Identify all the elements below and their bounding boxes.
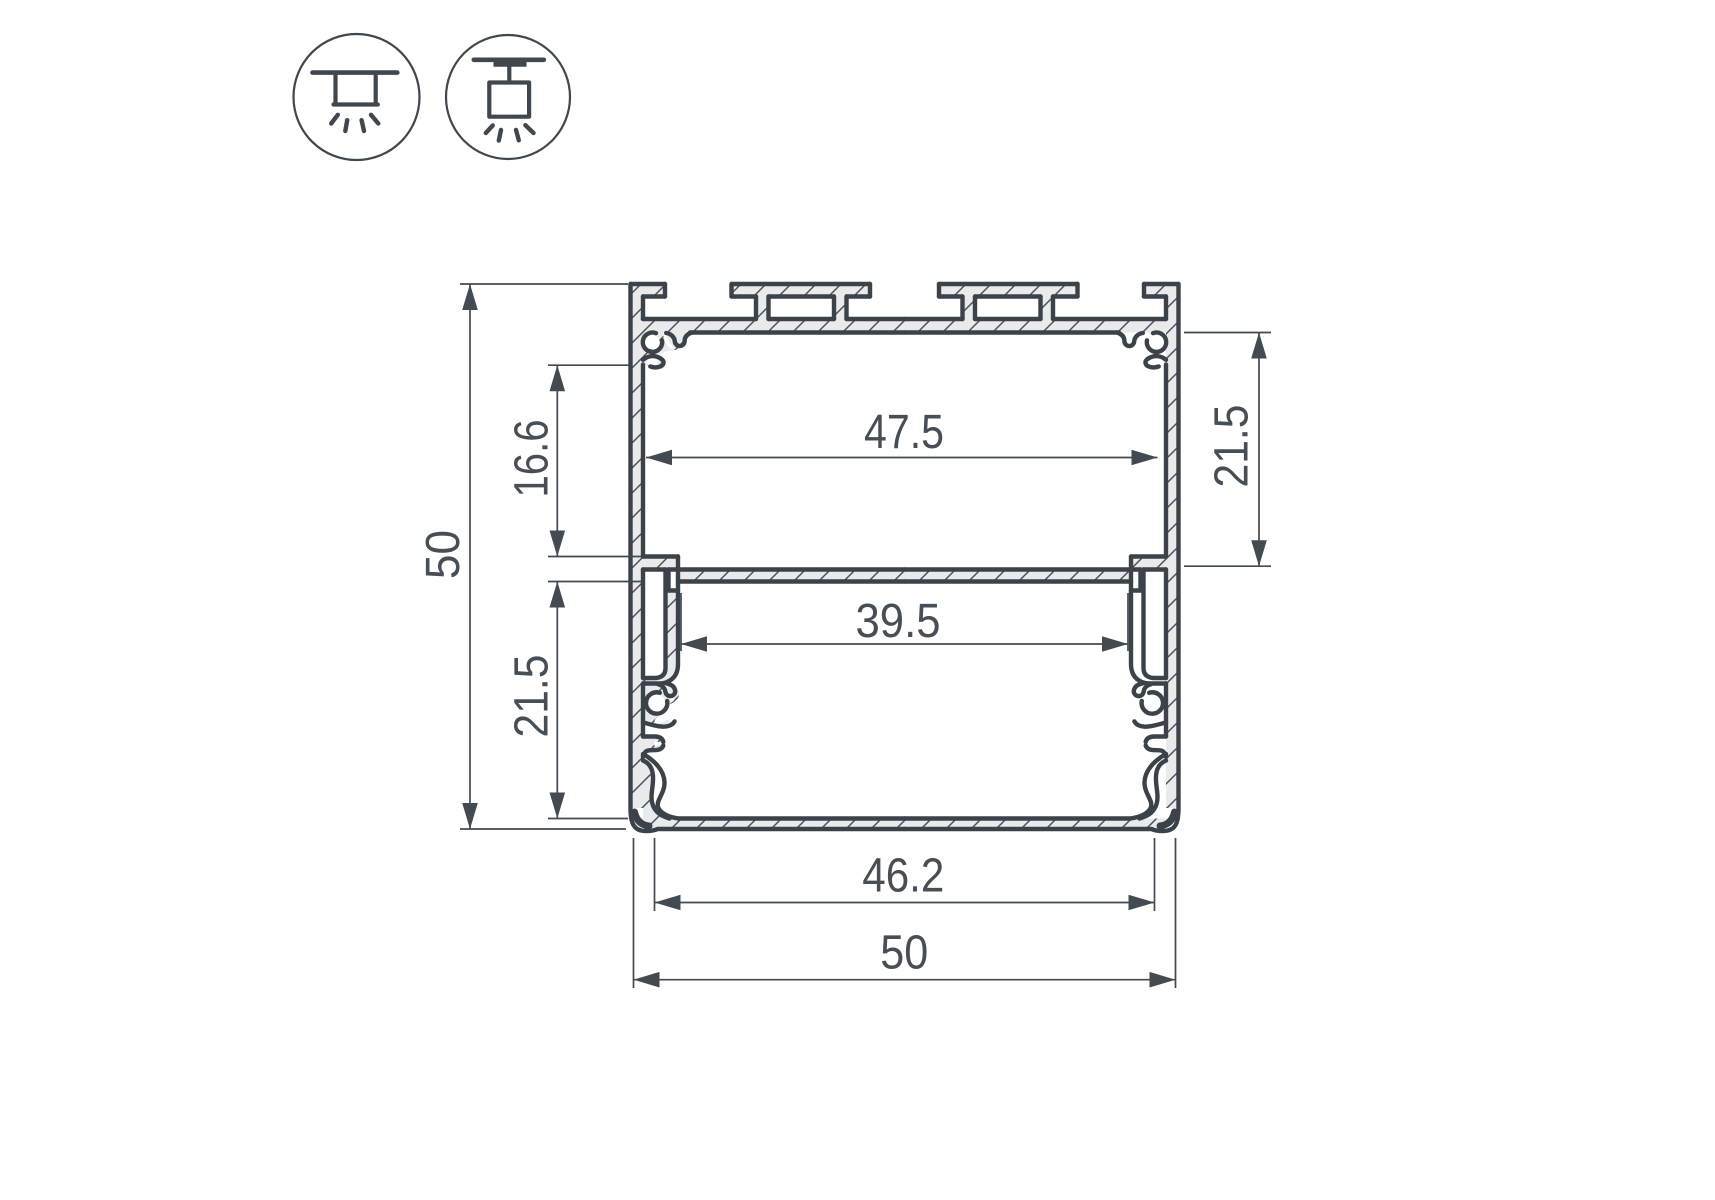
svg-text:46.2: 46.2 [862, 849, 944, 902]
svg-text:39.5: 39.5 [856, 595, 941, 648]
svg-text:21.5: 21.5 [1206, 405, 1259, 488]
svg-text:50: 50 [417, 530, 470, 579]
svg-text:50: 50 [880, 927, 928, 980]
svg-text:21.5: 21.5 [506, 655, 559, 738]
svg-text:16.6: 16.6 [506, 420, 559, 498]
svg-text:47.5: 47.5 [864, 406, 944, 459]
